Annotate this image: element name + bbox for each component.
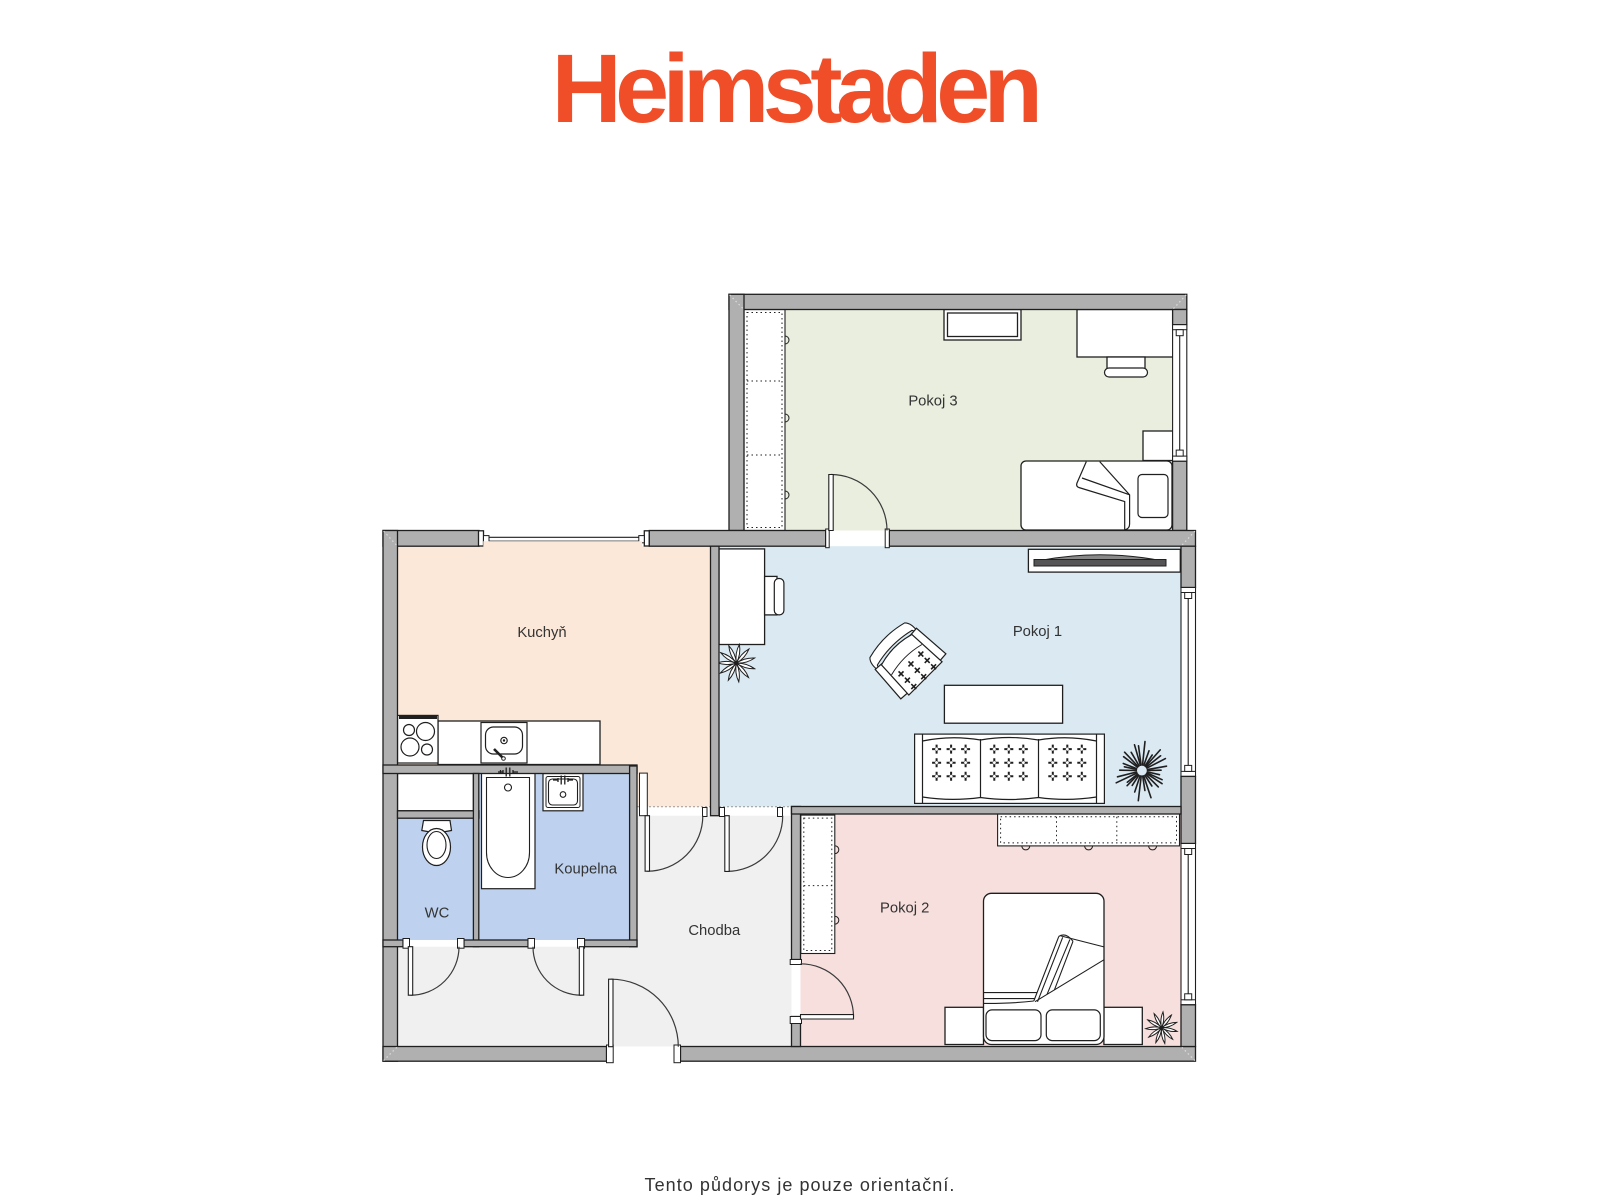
- svg-text:Pokoj 1: Pokoj 1: [1013, 624, 1062, 640]
- svg-text:Koupelna: Koupelna: [554, 861, 617, 877]
- svg-text:Kuchyň: Kuchyň: [517, 625, 566, 641]
- svg-text:WC: WC: [425, 906, 450, 922]
- svg-text:Tento půdorys je pouze orienta: Tento půdorys je pouze orientační.: [645, 1175, 956, 1195]
- svg-text:Pokoj 2: Pokoj 2: [880, 901, 929, 917]
- svg-text:Chodba: Chodba: [688, 923, 741, 939]
- svg-text:Pokoj 3: Pokoj 3: [908, 394, 957, 410]
- svg-text:Heimstaden: Heimstaden: [552, 34, 1038, 143]
